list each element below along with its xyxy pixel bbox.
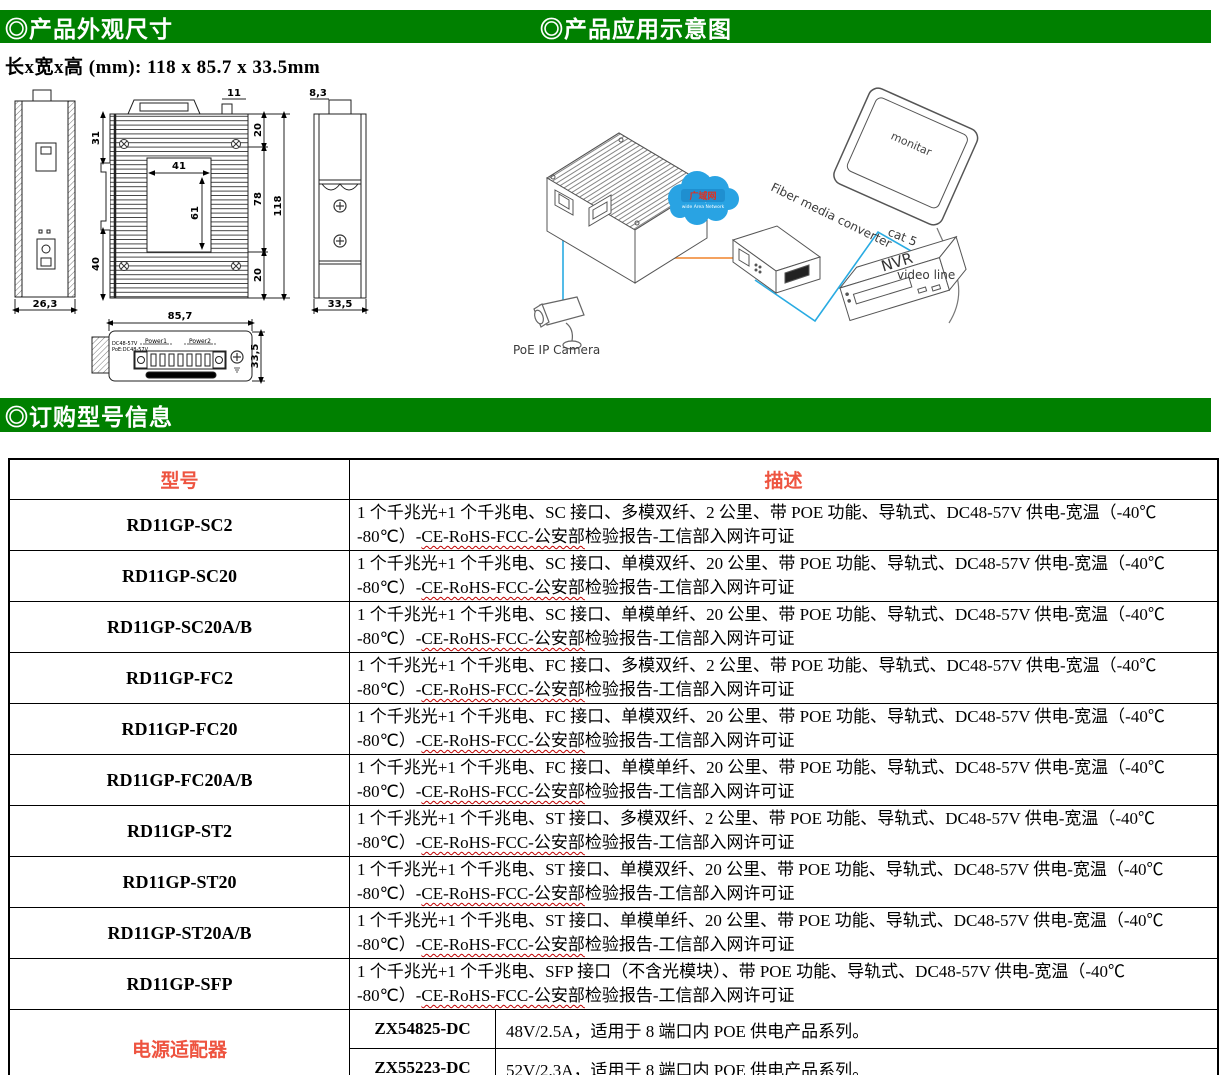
certification-text: CE-RoHS-FCC-公安部	[421, 782, 584, 801]
model-cell: RD11GP-SC20	[9, 551, 350, 602]
certification-text: CE-RoHS-FCC-公安部	[421, 629, 584, 648]
cloud-label: 广域网	[689, 190, 716, 202]
description-cell: 1 个千兆光+1 个千兆电、ST 接口、单模单纤、20 公里、带 POE 功能、…	[350, 908, 1219, 959]
certification-text: CE-RoHS-FCC-公安部	[421, 884, 584, 903]
dim-85-7: 85,7	[168, 311, 193, 322]
table-row: RD11GP-SC2 1 个千兆光+1 个千兆电、SC 接口、多模双纤、2 公里…	[9, 500, 1218, 551]
table-row: RD11GP-SC20 1 个千兆光+1 个千兆电、SC 接口、单模双纤、20 …	[9, 551, 1218, 602]
table-row: RD11GP-SC20A/B 1 个千兆光+1 个千兆电、SC 接口、单模单纤、…	[9, 602, 1218, 653]
model-cell: RD11GP-ST20A/B	[9, 908, 350, 959]
power-adapter-label: 电源适配器	[9, 1010, 350, 1075]
application-diagram: PoE IP Camera 广域网 wide Area Network Fibe…	[497, 83, 1019, 395]
column-header-model: 型号	[9, 459, 350, 500]
column-header-description: 描述	[350, 459, 1219, 500]
dim-118: 118	[273, 196, 284, 217]
model-cell: RD11GP-FC2	[9, 653, 350, 704]
dim-31: 31	[91, 131, 102, 145]
ordering-table: 型号 描述 RD11GP-SC2 1 个千兆光+1 个千兆电、SC 接口、多模双…	[8, 458, 1219, 1075]
adapter-code-cell: ZX54825-DC	[350, 1010, 496, 1049]
table-row: RD11GP-ST2 1 个千兆光+1 个千兆电、ST 接口、多模双纤、2 公里…	[9, 806, 1218, 857]
section-title-ordering: ◎订购型号信息	[5, 398, 173, 432]
video-line-label: video line	[897, 268, 955, 282]
certification-text: CE-RoHS-FCC-公安部	[421, 986, 584, 1005]
section-title-application: ◎产品应用示意图	[540, 10, 732, 44]
adapter-row: 电源适配器 ZX54825-DC 48V/2.5A，适用于 8 端口内 POE …	[9, 1010, 1218, 1049]
adapter-desc-cell: 48V/2.5A，适用于 8 端口内 POE 供电产品系列。	[496, 1010, 1219, 1049]
cloud-sublabel: wide Area Network	[682, 204, 725, 210]
table-header-row: 型号 描述	[9, 459, 1218, 500]
dim-20-top: 20	[253, 123, 264, 137]
description-cell: 1 个千兆光+1 个千兆电、SC 接口、多模双纤、2 公里、带 POE 功能、导…	[350, 500, 1219, 551]
certification-text: CE-RoHS-FCC-公安部	[421, 578, 584, 597]
overall-dimensions-text: 长x宽x高 (mm): 118 x 85.7 x 33.5mm	[5, 52, 320, 79]
bottom-view-drawing: 85,7 DC48-57V PoE:DC48-57V Power1 Power2	[92, 311, 265, 381]
model-cell: RD11GP-ST2	[9, 806, 350, 857]
ip-camera-illustration	[533, 297, 584, 349]
media-converter-illustration	[733, 226, 820, 293]
section-header-bar: ◎产品外观尺寸 ◎产品应用示意图	[0, 10, 1211, 43]
top-view-drawing: 11 41 61 31 40 20 78 20 118	[91, 88, 290, 298]
certification-text: CE-RoHS-FCC-公安部	[421, 731, 584, 750]
dim-78: 78	[253, 192, 264, 206]
model-cell: RD11GP-SFP	[9, 959, 350, 1010]
dim-61: 61	[190, 206, 201, 220]
description-cell: 1 个千兆光+1 个千兆电、FC 接口、多模双纤、2 公里、带 POE 功能、导…	[350, 653, 1219, 704]
certification-text: CE-RoHS-FCC-公安部	[421, 680, 584, 699]
table-row: RD11GP-ST20A/B 1 个千兆光+1 个千兆电、ST 接口、单模单纤、…	[9, 908, 1218, 959]
model-cell: RD11GP-FC20	[9, 704, 350, 755]
side-view-drawing: 8,3 33,5	[309, 88, 366, 314]
dim-20-bottom: 20	[253, 268, 264, 282]
dim-8-3: 8,3	[309, 88, 327, 99]
description-cell: 1 个千兆光+1 个千兆电、FC 接口、单模双纤、20 公里、带 POE 功能、…	[350, 704, 1219, 755]
dim-33-5-side: 33,5	[328, 299, 353, 310]
dim-41: 41	[172, 161, 186, 172]
description-cell: 1 个千兆光+1 个千兆电、SFP 接口（不含光模块）、带 POE 功能、导轨式…	[350, 959, 1219, 1010]
description-cell: 1 个千兆光+1 个千兆电、SC 接口、单模单纤、20 公里、带 POE 功能、…	[350, 602, 1219, 653]
certification-text: CE-RoHS-FCC-公安部	[421, 935, 584, 954]
table-row: RD11GP-FC2 1 个千兆光+1 个千兆电、FC 接口、多模双纤、2 公里…	[9, 653, 1218, 704]
certification-text: CE-RoHS-FCC-公安部	[421, 833, 584, 852]
description-cell: 1 个千兆光+1 个千兆电、SC 接口、单模双纤、20 公里、带 POE 功能、…	[350, 551, 1219, 602]
section-header-bar-ordering: ◎订购型号信息	[0, 398, 1211, 432]
model-cell: RD11GP-ST20	[9, 857, 350, 908]
description-cell: 1 个千兆光+1 个千兆电、FC 接口、单模单纤、20 公里、带 POE 功能、…	[350, 755, 1219, 806]
dim-26-3: 26,3	[33, 299, 58, 310]
table-row: RD11GP-ST20 1 个千兆光+1 个千兆电、ST 接口、单模双纤、20 …	[9, 857, 1218, 908]
model-cell: RD11GP-SC20A/B	[9, 602, 350, 653]
monitor-illustration: monitar	[831, 85, 981, 228]
dimension-drawings: 26,3 11 41 61 31 40 20	[6, 85, 488, 397]
dim-33-5-bottom: 33,5	[250, 344, 261, 369]
model-cell: RD11GP-SC2	[9, 500, 350, 551]
table-row: RD11GP-SFP 1 个千兆光+1 个千兆电、SFP 接口（不含光模块）、带…	[9, 959, 1218, 1010]
certification-text: CE-RoHS-FCC-公安部	[421, 527, 584, 546]
model-cell: RD11GP-FC20A/B	[9, 755, 350, 806]
description-cell: 1 个千兆光+1 个千兆电、ST 接口、单模双纤、20 公里、带 POE 功能、…	[350, 857, 1219, 908]
dim-40: 40	[91, 257, 102, 271]
table-row: RD11GP-FC20A/B 1 个千兆光+1 个千兆电、FC 接口、单模单纤、…	[9, 755, 1218, 806]
spec-sheet-page: ◎产品外观尺寸 ◎产品应用示意图 长x宽x高 (mm): 118 x 85.7 …	[0, 0, 1226, 1075]
adapter-desc-cell: 52V/2.3A，适用于 8 端口内 POE 供电产品系列。	[496, 1049, 1219, 1075]
section-title-dimensions: ◎产品外观尺寸	[5, 10, 173, 44]
dim-11: 11	[227, 88, 241, 99]
front-view-drawing: 26,3	[15, 90, 75, 314]
adapter-code-cell: ZX55223-DC	[350, 1049, 496, 1075]
camera-label: PoE IP Camera	[513, 343, 600, 357]
table-row: RD11GP-FC20 1 个千兆光+1 个千兆电、FC 接口、单模双纤、20 …	[9, 704, 1218, 755]
description-cell: 1 个千兆光+1 个千兆电、ST 接口、多模双纤、2 公里、带 POE 功能、导…	[350, 806, 1219, 857]
